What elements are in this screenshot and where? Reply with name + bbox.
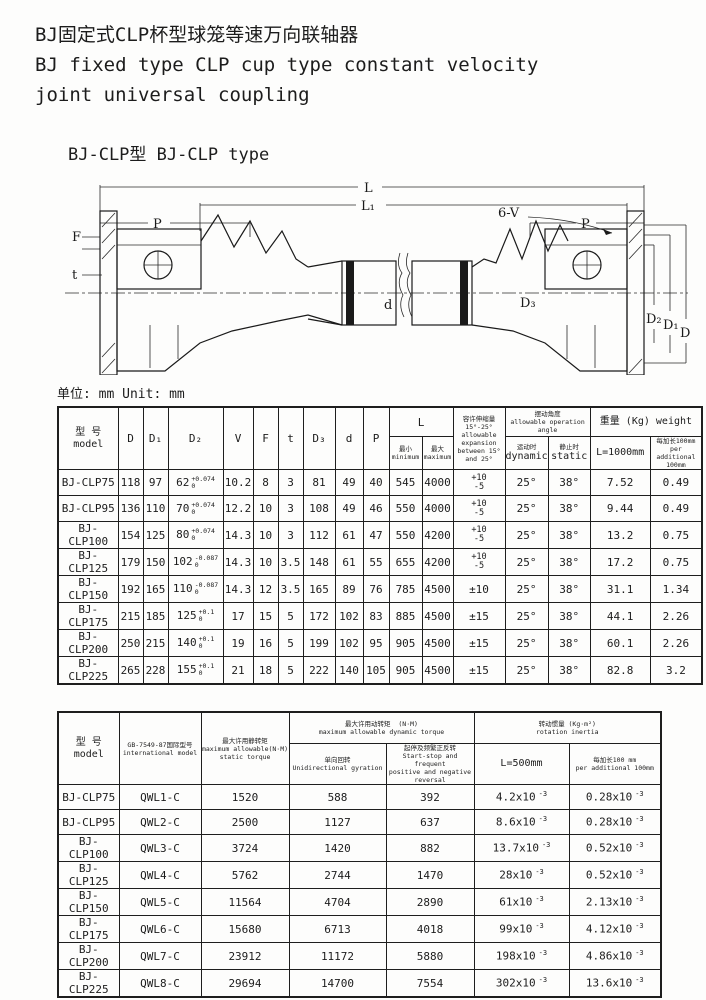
col-header-dynamic: 运动时 dynamic <box>505 437 548 470</box>
cell-expansion: +10-5 <box>453 522 505 549</box>
cell-unidirectional: 14700 <box>289 970 386 998</box>
col-header-L: L <box>389 407 453 437</box>
table-row: BJ-CLP10015412580+0.074014.3103112614755… <box>58 522 702 549</box>
header-row-1: 型 号 model D D₁ D₂ V F t D₃ d P L 容许伸缩量15… <box>58 407 702 437</box>
cell-international-model: QWL5-C <box>119 889 201 916</box>
col-header-static: 静止时 static <box>548 437 590 470</box>
cell-D: 118 <box>118 470 143 496</box>
cell-inertia-500: 28x10-3 <box>474 862 569 889</box>
cell-start-stop: 4018 <box>386 916 474 943</box>
cell-static-angle: 38° <box>548 630 590 657</box>
cell-international-model: QWL1-C <box>119 785 201 810</box>
page-title-zh: BJ固定式CLP杯型球笼等速万向联轴器 <box>35 20 706 50</box>
cell-dynamic-angle: 25° <box>505 603 548 630</box>
table-row: BJ-CLP200QWL7-C23912111725880198x10-34.8… <box>58 943 661 970</box>
dim-label-L: L <box>364 181 373 196</box>
cell-V: 19 <box>223 630 253 657</box>
cell-start-stop: 392 <box>386 785 474 810</box>
dim-label-L1: L₁ <box>361 199 375 214</box>
cell-V: 12.2 <box>223 496 253 522</box>
cell-D: 250 <box>118 630 143 657</box>
cell-static-angle: 38° <box>548 470 590 496</box>
cell-start-stop: 5880 <box>386 943 474 970</box>
cell-inertia-500: 302x10-3 <box>474 970 569 998</box>
cell-model: BJ-CLP175 <box>58 916 119 943</box>
cell-static-angle: 38° <box>548 657 590 685</box>
cell-international-model: QWL4-C <box>119 862 201 889</box>
cell-F: 8 <box>253 470 278 496</box>
cell-international-model: QWL8-C <box>119 970 201 998</box>
col-header-start-stop: 起停及频繁正反转 Start-stop and frequent positiv… <box>386 744 474 785</box>
cell-weight-1000: 13.2 <box>590 522 650 549</box>
cell-d: 102 <box>335 630 363 657</box>
table-row: BJ-CLP751189762+0.074010.283814940545400… <box>58 470 702 496</box>
col-header-D3: D₃ <box>303 407 335 470</box>
col-header-L1000: L=1000mm <box>590 437 650 470</box>
boot-clamp-right <box>460 261 468 325</box>
catalog-page: BJ固定式CLP杯型球笼等速万向联轴器 BJ fixed type CLP cu… <box>0 0 706 1000</box>
cell-static-torque: 2500 <box>201 810 289 835</box>
cell-d: 49 <box>335 496 363 522</box>
page-title-en-1: BJ fixed type CLP cup type constant velo… <box>35 50 706 80</box>
table-row: BJ-CLP150192165110-0.087014.3123.5165897… <box>58 576 702 603</box>
table-row: BJ-CLP175215185125+0.1017155172102838854… <box>58 603 702 630</box>
cell-unidirectional: 4704 <box>289 889 386 916</box>
dim-label-d: d <box>384 298 392 313</box>
cell-L-max: 4200 <box>422 549 453 576</box>
dim-label-t: t <box>72 268 78 283</box>
cell-inertia-add: 13.6x10-3 <box>569 970 661 998</box>
cell-dynamic-angle: 25° <box>505 657 548 685</box>
cell-weight-1000: 60.1 <box>590 630 650 657</box>
cell-model: BJ-CLP225 <box>58 657 118 685</box>
cell-L-max: 4000 <box>422 470 453 496</box>
cell-international-model: QWL6-C <box>119 916 201 943</box>
table-row: BJ-CLP125179150102-0.087014.3103.5148615… <box>58 549 702 576</box>
cell-L-min: 885 <box>389 603 422 630</box>
cell-D: 136 <box>118 496 143 522</box>
col-header-D1: D₁ <box>143 407 168 470</box>
cell-L-min: 550 <box>389 496 422 522</box>
cell-inertia-add: 4.12x10-3 <box>569 916 661 943</box>
cell-d: 61 <box>335 522 363 549</box>
cell-V: 21 <box>223 657 253 685</box>
cell-inertia-add: 0.52x10-3 <box>569 835 661 862</box>
cell-P: 55 <box>363 549 389 576</box>
cell-D: 179 <box>118 549 143 576</box>
cell-expansion: ±10 <box>453 576 505 603</box>
cell-t: 3.5 <box>278 549 303 576</box>
cell-model: BJ-CLP95 <box>58 810 119 835</box>
dim-label-6V: 6-V <box>498 206 520 221</box>
cell-unidirectional: 1127 <box>289 810 386 835</box>
cell-inertia-500: 8.6x10-3 <box>474 810 569 835</box>
cell-expansion: +10-5 <box>453 549 505 576</box>
cell-V: 14.3 <box>223 522 253 549</box>
cell-F: 16 <box>253 630 278 657</box>
cell-model: BJ-CLP200 <box>58 630 118 657</box>
cell-unidirectional: 1420 <box>289 835 386 862</box>
cell-D1: 165 <box>143 576 168 603</box>
cell-static-angle: 38° <box>548 603 590 630</box>
cell-weight-1000: 17.2 <box>590 549 650 576</box>
cell-D3: 172 <box>303 603 335 630</box>
cell-F: 10 <box>253 549 278 576</box>
cell-F: 18 <box>253 657 278 685</box>
cell-static-torque: 15680 <box>201 916 289 943</box>
col-header-L500: L=500mm <box>474 744 569 785</box>
cell-D2: 155+0.10 <box>168 657 223 685</box>
cell-static-angle: 38° <box>548 576 590 603</box>
cell-L-max: 4000 <box>422 496 453 522</box>
col-header-add100: 每加长100 mm per additional 100mm <box>569 744 661 785</box>
cell-inertia-add: 0.28x10-3 <box>569 810 661 835</box>
cell-weight-add: 2.26 <box>650 603 702 630</box>
cell-static-angle: 38° <box>548 549 590 576</box>
cell-D2: 70+0.0740 <box>168 496 223 522</box>
cell-t: 5 <box>278 603 303 630</box>
cell-expansion: ±15 <box>453 603 505 630</box>
col-header-d: d <box>335 407 363 470</box>
cell-weight-add: 1.34 <box>650 576 702 603</box>
col-header-wadd: 每加长100mm per additional 100mm <box>650 437 702 470</box>
cell-P: 40 <box>363 470 389 496</box>
cell-model: BJ-CLP100 <box>58 835 119 862</box>
dim-label-D: D <box>680 326 690 341</box>
cell-model: BJ-CLP100 <box>58 522 118 549</box>
cell-dynamic-angle: 25° <box>505 470 548 496</box>
cell-inertia-500: 198x10-3 <box>474 943 569 970</box>
cell-start-stop: 2890 <box>386 889 474 916</box>
cell-inertia-add: 0.28x10-3 <box>569 785 661 810</box>
cell-weight-1000: 7.52 <box>590 470 650 496</box>
cell-model: BJ-CLP95 <box>58 496 118 522</box>
cell-L-min: 655 <box>389 549 422 576</box>
cell-weight-add: 3.2 <box>650 657 702 685</box>
cell-L-max: 4500 <box>422 630 453 657</box>
cell-weight-add: 0.75 <box>650 549 702 576</box>
cell-d: 61 <box>335 549 363 576</box>
cell-D2: 110-0.0870 <box>168 576 223 603</box>
col-header-V: V <box>223 407 253 470</box>
col-header-unidirectional: 单向回转 Unidirectional gyration <box>289 744 386 785</box>
cell-D1: 150 <box>143 549 168 576</box>
dimension-table: 型 号 model D D₁ D₂ V F t D₃ d P L 容许伸缩量15… <box>57 406 703 685</box>
cell-international-model: QWL7-C <box>119 943 201 970</box>
cell-inertia-500: 4.2x10-3 <box>474 785 569 810</box>
dim-label-F: F <box>72 230 81 245</box>
cell-unidirectional: 2744 <box>289 862 386 889</box>
cell-F: 15 <box>253 603 278 630</box>
cell-unidirectional: 6713 <box>289 916 386 943</box>
cell-inertia-500: 13.7x10-3 <box>474 835 569 862</box>
cell-D2: 62+0.0740 <box>168 470 223 496</box>
cell-D3: 222 <box>303 657 335 685</box>
cell-static-torque: 1520 <box>201 785 289 810</box>
cell-weight-add: 2.26 <box>650 630 702 657</box>
cell-inertia-500: 61x10-3 <box>474 889 569 916</box>
col-header-international-model: GB-7549-87国际型号 international model <box>119 712 201 785</box>
cell-L-min: 905 <box>389 657 422 685</box>
cell-unidirectional: 588 <box>289 785 386 810</box>
cell-L-max: 4500 <box>422 657 453 685</box>
table-row: BJ-CLP75QWL1-C15205883924.2x10-30.28x10-… <box>58 785 661 810</box>
cell-dynamic-angle: 25° <box>505 630 548 657</box>
cell-d: 49 <box>335 470 363 496</box>
table-row: BJ-CLP9513611070+0.074012.21031084946550… <box>58 496 702 522</box>
cell-static-angle: 38° <box>548 496 590 522</box>
cell-L-max: 4500 <box>422 603 453 630</box>
cell-d: 89 <box>335 576 363 603</box>
cell-static-torque: 23912 <box>201 943 289 970</box>
cell-inertia-500: 99x10-3 <box>474 916 569 943</box>
cell-d: 102 <box>335 603 363 630</box>
col-header-angle: 摆动角度 allowable operation angle <box>505 407 590 437</box>
cell-V: 14.3 <box>223 549 253 576</box>
cell-dynamic-angle: 25° <box>505 496 548 522</box>
cell-D1: 228 <box>143 657 168 685</box>
cell-start-stop: 7554 <box>386 970 474 998</box>
table-row: BJ-CLP95QWL2-C250011276378.6x10-30.28x10… <box>58 810 661 835</box>
cell-D: 265 <box>118 657 143 685</box>
cell-P: 76 <box>363 576 389 603</box>
cell-model: BJ-CLP75 <box>58 470 118 496</box>
cell-V: 17 <box>223 603 253 630</box>
cell-D1: 125 <box>143 522 168 549</box>
cell-t: 5 <box>278 657 303 685</box>
cell-L-min: 545 <box>389 470 422 496</box>
cell-D3: 199 <box>303 630 335 657</box>
cell-model: BJ-CLP125 <box>58 862 119 889</box>
cell-F: 10 <box>253 522 278 549</box>
cell-D3: 112 <box>303 522 335 549</box>
col-header-D: D <box>118 407 143 470</box>
dim-label-D2: D₂ <box>646 312 662 327</box>
cell-P: 46 <box>363 496 389 522</box>
cell-weight-1000: 31.1 <box>590 576 650 603</box>
technical-drawing: L L₁ P P F t 6-V <box>50 175 706 375</box>
col-header-t: t <box>278 407 303 470</box>
cell-weight-add: 0.75 <box>650 522 702 549</box>
col-header-rotation-inertia: 转动惯量 (Kg·m²) rotation inertia <box>474 712 661 744</box>
cell-model: BJ-CLP175 <box>58 603 118 630</box>
col-header-expansion: 容许伸缩量15°-25° allowable expansion between… <box>453 407 505 470</box>
col-header-model: 型 号 model <box>58 407 118 470</box>
cell-unidirectional: 11172 <box>289 943 386 970</box>
cell-dynamic-angle: 25° <box>505 522 548 549</box>
col-header-D2: D₂ <box>168 407 223 470</box>
type-subtitle: BJ-CLP型 BJ-CLP type <box>68 140 706 165</box>
dim-label-P-left: P <box>153 217 162 232</box>
cell-P: 95 <box>363 630 389 657</box>
cell-P: 105 <box>363 657 389 685</box>
coupling-cross-section: L L₁ P P F t 6-V <box>50 175 695 375</box>
cell-model: BJ-CLP225 <box>58 970 119 998</box>
cell-expansion: +10-5 <box>453 470 505 496</box>
cell-D2: 125+0.10 <box>168 603 223 630</box>
col-header-F: F <box>253 407 278 470</box>
cell-F: 10 <box>253 496 278 522</box>
cell-weight-1000: 82.8 <box>590 657 650 685</box>
cell-model: BJ-CLP75 <box>58 785 119 810</box>
col-header-dynamic-torque: 最大许用动转矩 (N·M) maximum allowable dynamic … <box>289 712 474 744</box>
table-row: BJ-CLP150QWL5-C115644704289061x10-32.13x… <box>58 889 661 916</box>
cell-V: 14.3 <box>223 576 253 603</box>
cell-D2: 102-0.0870 <box>168 549 223 576</box>
cell-static-torque: 29694 <box>201 970 289 998</box>
cell-L-min: 550 <box>389 522 422 549</box>
cell-d: 140 <box>335 657 363 685</box>
cell-static-torque: 5762 <box>201 862 289 889</box>
cell-t: 5 <box>278 630 303 657</box>
cell-D3: 108 <box>303 496 335 522</box>
col-header-weight: 重量 (Kg) weight <box>590 407 702 437</box>
cell-model: BJ-CLP200 <box>58 943 119 970</box>
col-header-static-torque: 最大许用静转矩 maximum allowable(N·M) static to… <box>201 712 289 785</box>
table-row: BJ-CLP225265228155+0.1021185222140105905… <box>58 657 702 685</box>
unit-note: 单位: mm Unit: mm <box>57 383 706 402</box>
col-header-P: P <box>363 407 389 470</box>
cell-dynamic-angle: 25° <box>505 549 548 576</box>
cell-inertia-add: 0.52x10-3 <box>569 862 661 889</box>
cell-D: 215 <box>118 603 143 630</box>
header-row-1: 型 号 model GB-7549-87国际型号 international m… <box>58 712 661 744</box>
col-header-model: 型 号 model <box>58 712 119 785</box>
cell-t: 3 <box>278 522 303 549</box>
cell-D1: 97 <box>143 470 168 496</box>
cell-model: BJ-CLP150 <box>58 889 119 916</box>
cell-D2: 140+0.10 <box>168 630 223 657</box>
cell-international-model: QWL3-C <box>119 835 201 862</box>
cell-international-model: QWL2-C <box>119 810 201 835</box>
cell-start-stop: 1470 <box>386 862 474 889</box>
cell-expansion: +10-5 <box>453 496 505 522</box>
cell-t: 3 <box>278 470 303 496</box>
cell-t: 3 <box>278 496 303 522</box>
cell-D2: 80+0.0740 <box>168 522 223 549</box>
table-row: BJ-CLP225QWL8-C29694147007554302x10-313.… <box>58 970 661 998</box>
page-title-en-2: joint universal coupling <box>35 80 706 110</box>
cell-L-min: 905 <box>389 630 422 657</box>
cell-weight-add: 0.49 <box>650 496 702 522</box>
boot-clamp-left <box>346 261 354 325</box>
table-row: BJ-CLP100QWL3-C3724142088213.7x10-30.52x… <box>58 835 661 862</box>
col-header-L-min: 最小 minimum <box>389 437 422 470</box>
cell-start-stop: 882 <box>386 835 474 862</box>
title-block: BJ固定式CLP杯型球笼等速万向联轴器 BJ fixed type CLP cu… <box>0 0 706 110</box>
cell-P: 83 <box>363 603 389 630</box>
cell-expansion: ±15 <box>453 630 505 657</box>
cell-model: BJ-CLP125 <box>58 549 118 576</box>
table-row: BJ-CLP175QWL6-C156806713401899x10-34.12x… <box>58 916 661 943</box>
cell-model: BJ-CLP150 <box>58 576 118 603</box>
cell-weight-add: 0.49 <box>650 470 702 496</box>
torque-table: 型 号 model GB-7549-87国际型号 international m… <box>57 711 662 998</box>
cell-D1: 215 <box>143 630 168 657</box>
table-row: BJ-CLP125QWL4-C57622744147028x10-30.52x1… <box>58 862 661 889</box>
cell-D: 154 <box>118 522 143 549</box>
cell-D1: 185 <box>143 603 168 630</box>
col-header-L-max: 最大 maximum <box>422 437 453 470</box>
cell-inertia-add: 4.86x10-3 <box>569 943 661 970</box>
cell-start-stop: 637 <box>386 810 474 835</box>
cell-static-torque: 3724 <box>201 835 289 862</box>
cell-F: 12 <box>253 576 278 603</box>
cell-D3: 81 <box>303 470 335 496</box>
cell-static-angle: 38° <box>548 522 590 549</box>
cell-L-max: 4500 <box>422 576 453 603</box>
cell-weight-1000: 44.1 <box>590 603 650 630</box>
dim-label-D3: D₃ <box>520 296 536 311</box>
cell-D: 192 <box>118 576 143 603</box>
cell-V: 10.2 <box>223 470 253 496</box>
cell-D3: 165 <box>303 576 335 603</box>
cell-dynamic-angle: 25° <box>505 576 548 603</box>
cell-expansion: ±15 <box>453 657 505 685</box>
cell-D1: 110 <box>143 496 168 522</box>
cell-L-max: 4200 <box>422 522 453 549</box>
dim-label-D1: D₁ <box>663 318 679 333</box>
cell-inertia-add: 2.13x10-3 <box>569 889 661 916</box>
cell-static-torque: 11564 <box>201 889 289 916</box>
cell-L-min: 785 <box>389 576 422 603</box>
table-row: BJ-CLP200250215140+0.1019165199102959054… <box>58 630 702 657</box>
cell-t: 3.5 <box>278 576 303 603</box>
cell-P: 47 <box>363 522 389 549</box>
cell-D3: 148 <box>303 549 335 576</box>
cell-weight-1000: 9.44 <box>590 496 650 522</box>
